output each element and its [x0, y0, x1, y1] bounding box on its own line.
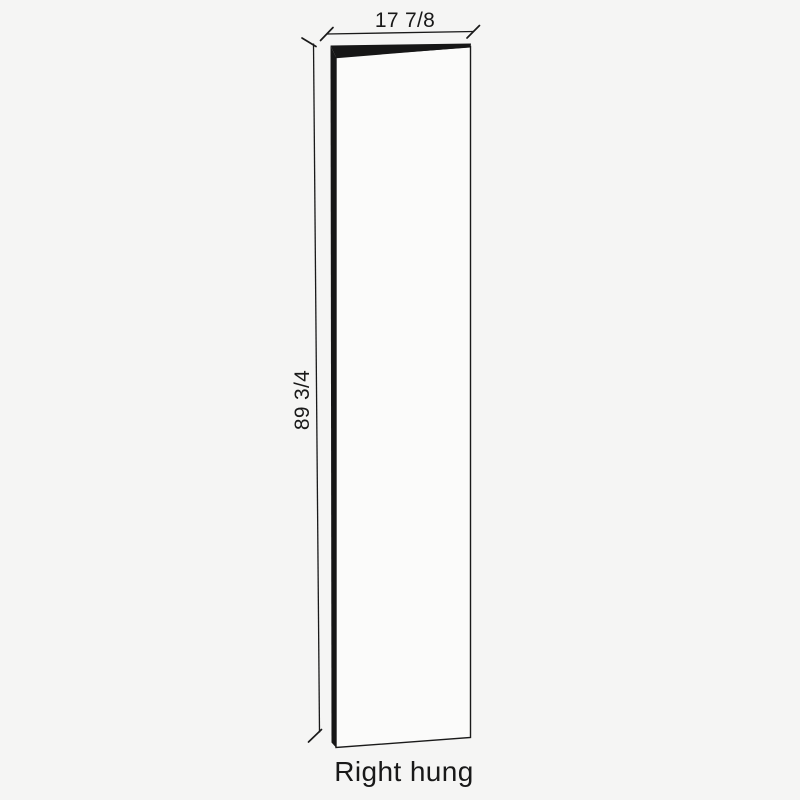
height-dimension-line	[314, 44, 320, 733]
door-left-edge	[331, 46, 337, 748]
door-face	[336, 47, 471, 748]
height-dimension-label: 89 3/4	[291, 370, 314, 430]
diagram-canvas: 17 7/8 89 3/4 Right hung	[0, 0, 800, 800]
height-dim-tick-bottom	[309, 730, 322, 743]
height-dim-tick-top	[302, 38, 316, 47]
door-diagram: 17 7/8 89 3/4 Right hung	[0, 0, 800, 800]
width-dimension-label: 17 7/8	[375, 9, 435, 32]
width-dimension: 17 7/8	[321, 9, 480, 41]
door-caption: Right hung	[334, 756, 473, 787]
height-dimension: 89 3/4	[291, 38, 322, 742]
door	[331, 44, 472, 748]
